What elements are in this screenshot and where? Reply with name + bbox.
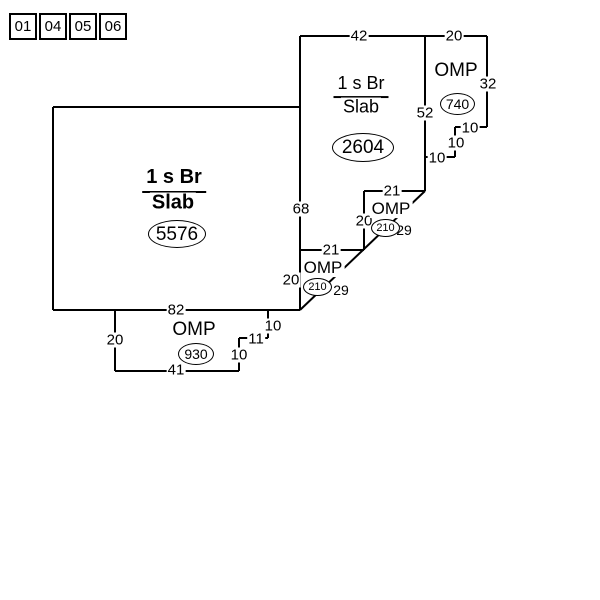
dim-mid-52: 52 — [416, 106, 435, 121]
porch930-area-value: 930 — [184, 347, 207, 361]
porch740-area-oval: 740 — [440, 93, 475, 115]
porch210-upper-area-oval: 210 — [371, 219, 400, 237]
dim-top-20: 20 — [445, 29, 464, 44]
sketch-drawing — [0, 0, 600, 600]
dim-right-32: 32 — [479, 77, 498, 92]
main-area-oval: 5576 — [148, 220, 206, 248]
dim-upper-21: 21 — [383, 184, 402, 199]
porch210-lower-label: OMP — [302, 259, 345, 277]
upper-foundation-label: Slab — [341, 98, 381, 117]
upper-area-value: 2604 — [342, 138, 384, 157]
porch930-area-oval: 930 — [178, 343, 214, 365]
main-story-label: 1 s Br — [142, 167, 206, 193]
main-foundation-label: Slab — [150, 193, 196, 214]
porch210-upper-label: OMP — [370, 200, 413, 218]
dim-step-10a: 10 — [461, 121, 480, 136]
sketch-canvas: 01 04 05 06 42 20 32 10 10 10 — [0, 0, 600, 600]
dim-lower-29: 29 — [332, 283, 350, 297]
dim-bottom-20: 20 — [106, 333, 125, 348]
dim-lower-21: 21 — [322, 243, 341, 258]
porch740-label: OMP — [432, 61, 479, 81]
upper-area-oval: 2604 — [332, 133, 394, 162]
porch210-lower-area-oval: 210 — [303, 278, 332, 296]
dim-bottom-10a: 10 — [230, 348, 249, 363]
dim-step-10b: 10 — [447, 136, 466, 151]
dim-top-42: 42 — [350, 29, 369, 44]
dim-bottom-41: 41 — [167, 363, 186, 378]
dim-step-10c: 10 — [428, 151, 447, 166]
porch740-area-value: 740 — [446, 97, 469, 111]
dim-bottom-11: 11 — [247, 332, 265, 347]
main-area-value: 5576 — [156, 225, 198, 244]
dim-bottom-10b: 10 — [264, 319, 283, 334]
dim-main-68: 68 — [292, 202, 311, 217]
upper-story-label: 1 s Br — [333, 74, 388, 98]
porch210-lower-area-value: 210 — [308, 282, 326, 293]
dim-lower-20: 20 — [282, 273, 301, 288]
porch210-upper-area-value: 210 — [376, 223, 394, 234]
dim-main-82: 82 — [167, 303, 186, 318]
porch930-label: OMP — [170, 320, 217, 340]
